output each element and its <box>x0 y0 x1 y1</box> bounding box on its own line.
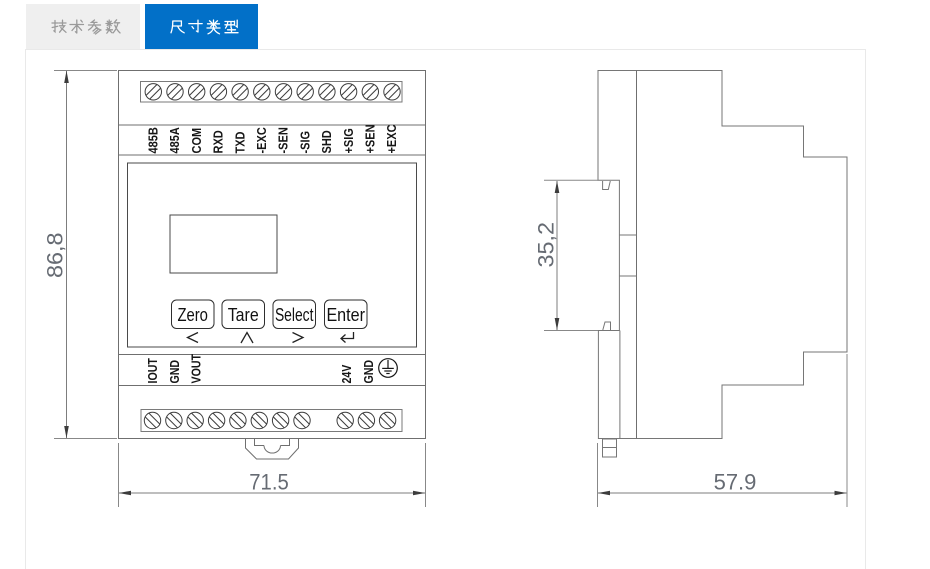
svg-text:-SEN: -SEN <box>277 127 291 153</box>
svg-text:GND: GND <box>362 360 376 384</box>
svg-text:57.9: 57.9 <box>714 470 757 495</box>
svg-text:485B: 485B <box>147 127 161 153</box>
svg-text:TXD: TXD <box>234 132 248 154</box>
svg-text:35,2: 35,2 <box>534 222 559 268</box>
svg-text:GND: GND <box>168 360 182 384</box>
svg-text:485A: 485A <box>169 127 183 154</box>
svg-text:+SIG: +SIG <box>342 128 356 153</box>
svg-text:VOUT: VOUT <box>190 354 204 384</box>
svg-text:+EXC: +EXC <box>386 124 400 153</box>
svg-text:71.5: 71.5 <box>249 470 289 495</box>
svg-text:Zero: Zero <box>177 305 208 325</box>
svg-text:24V: 24V <box>340 364 354 383</box>
svg-text:86,8: 86,8 <box>43 233 68 279</box>
svg-text:SHD: SHD <box>320 130 334 153</box>
svg-text:IOUT: IOUT <box>146 358 160 383</box>
svg-text:-SIG: -SIG <box>299 131 313 154</box>
svg-text:-EXC: -EXC <box>255 127 269 154</box>
svg-text:Enter: Enter <box>326 305 365 325</box>
svg-text:Tare: Tare <box>228 305 259 325</box>
svg-text:+SEN: +SEN <box>364 124 378 153</box>
svg-text:COM: COM <box>190 128 204 154</box>
svg-text:Select: Select <box>275 305 314 325</box>
svg-text:RXD: RXD <box>212 130 226 153</box>
